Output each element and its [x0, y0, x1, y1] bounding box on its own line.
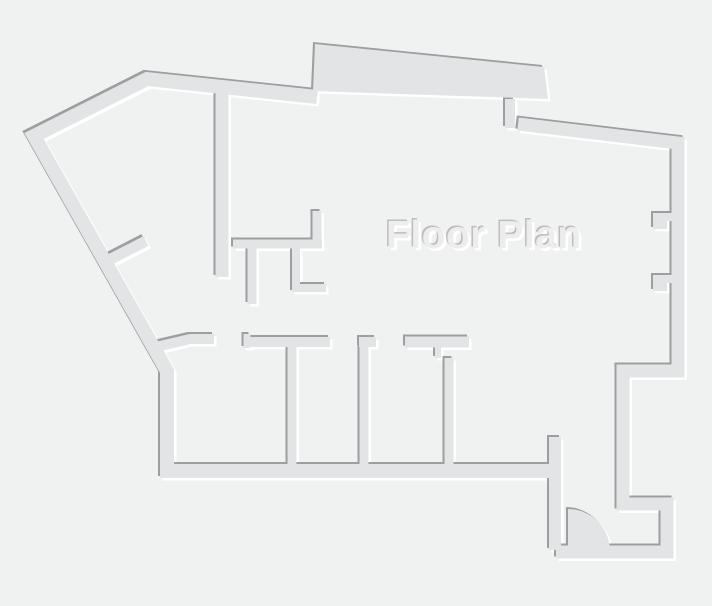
entry-door-swing-fill	[568, 509, 610, 551]
top-bump-slab-fill	[313, 44, 548, 99]
layer-fill	[34, 44, 678, 552]
outer-wall-right-and-vestibule-shadow	[516, 122, 676, 550]
walls-root	[32, 42, 681, 555]
floor-plan-title: Floor Plan	[386, 216, 582, 255]
floor-plan-page: Floor Plan	[0, 0, 712, 606]
floor-plan-drawing	[0, 0, 712, 606]
outer-wall-right-and-vestibule-highlight	[521, 127, 681, 555]
outer-wall-right-and-vestibule-fill	[518, 124, 678, 552]
